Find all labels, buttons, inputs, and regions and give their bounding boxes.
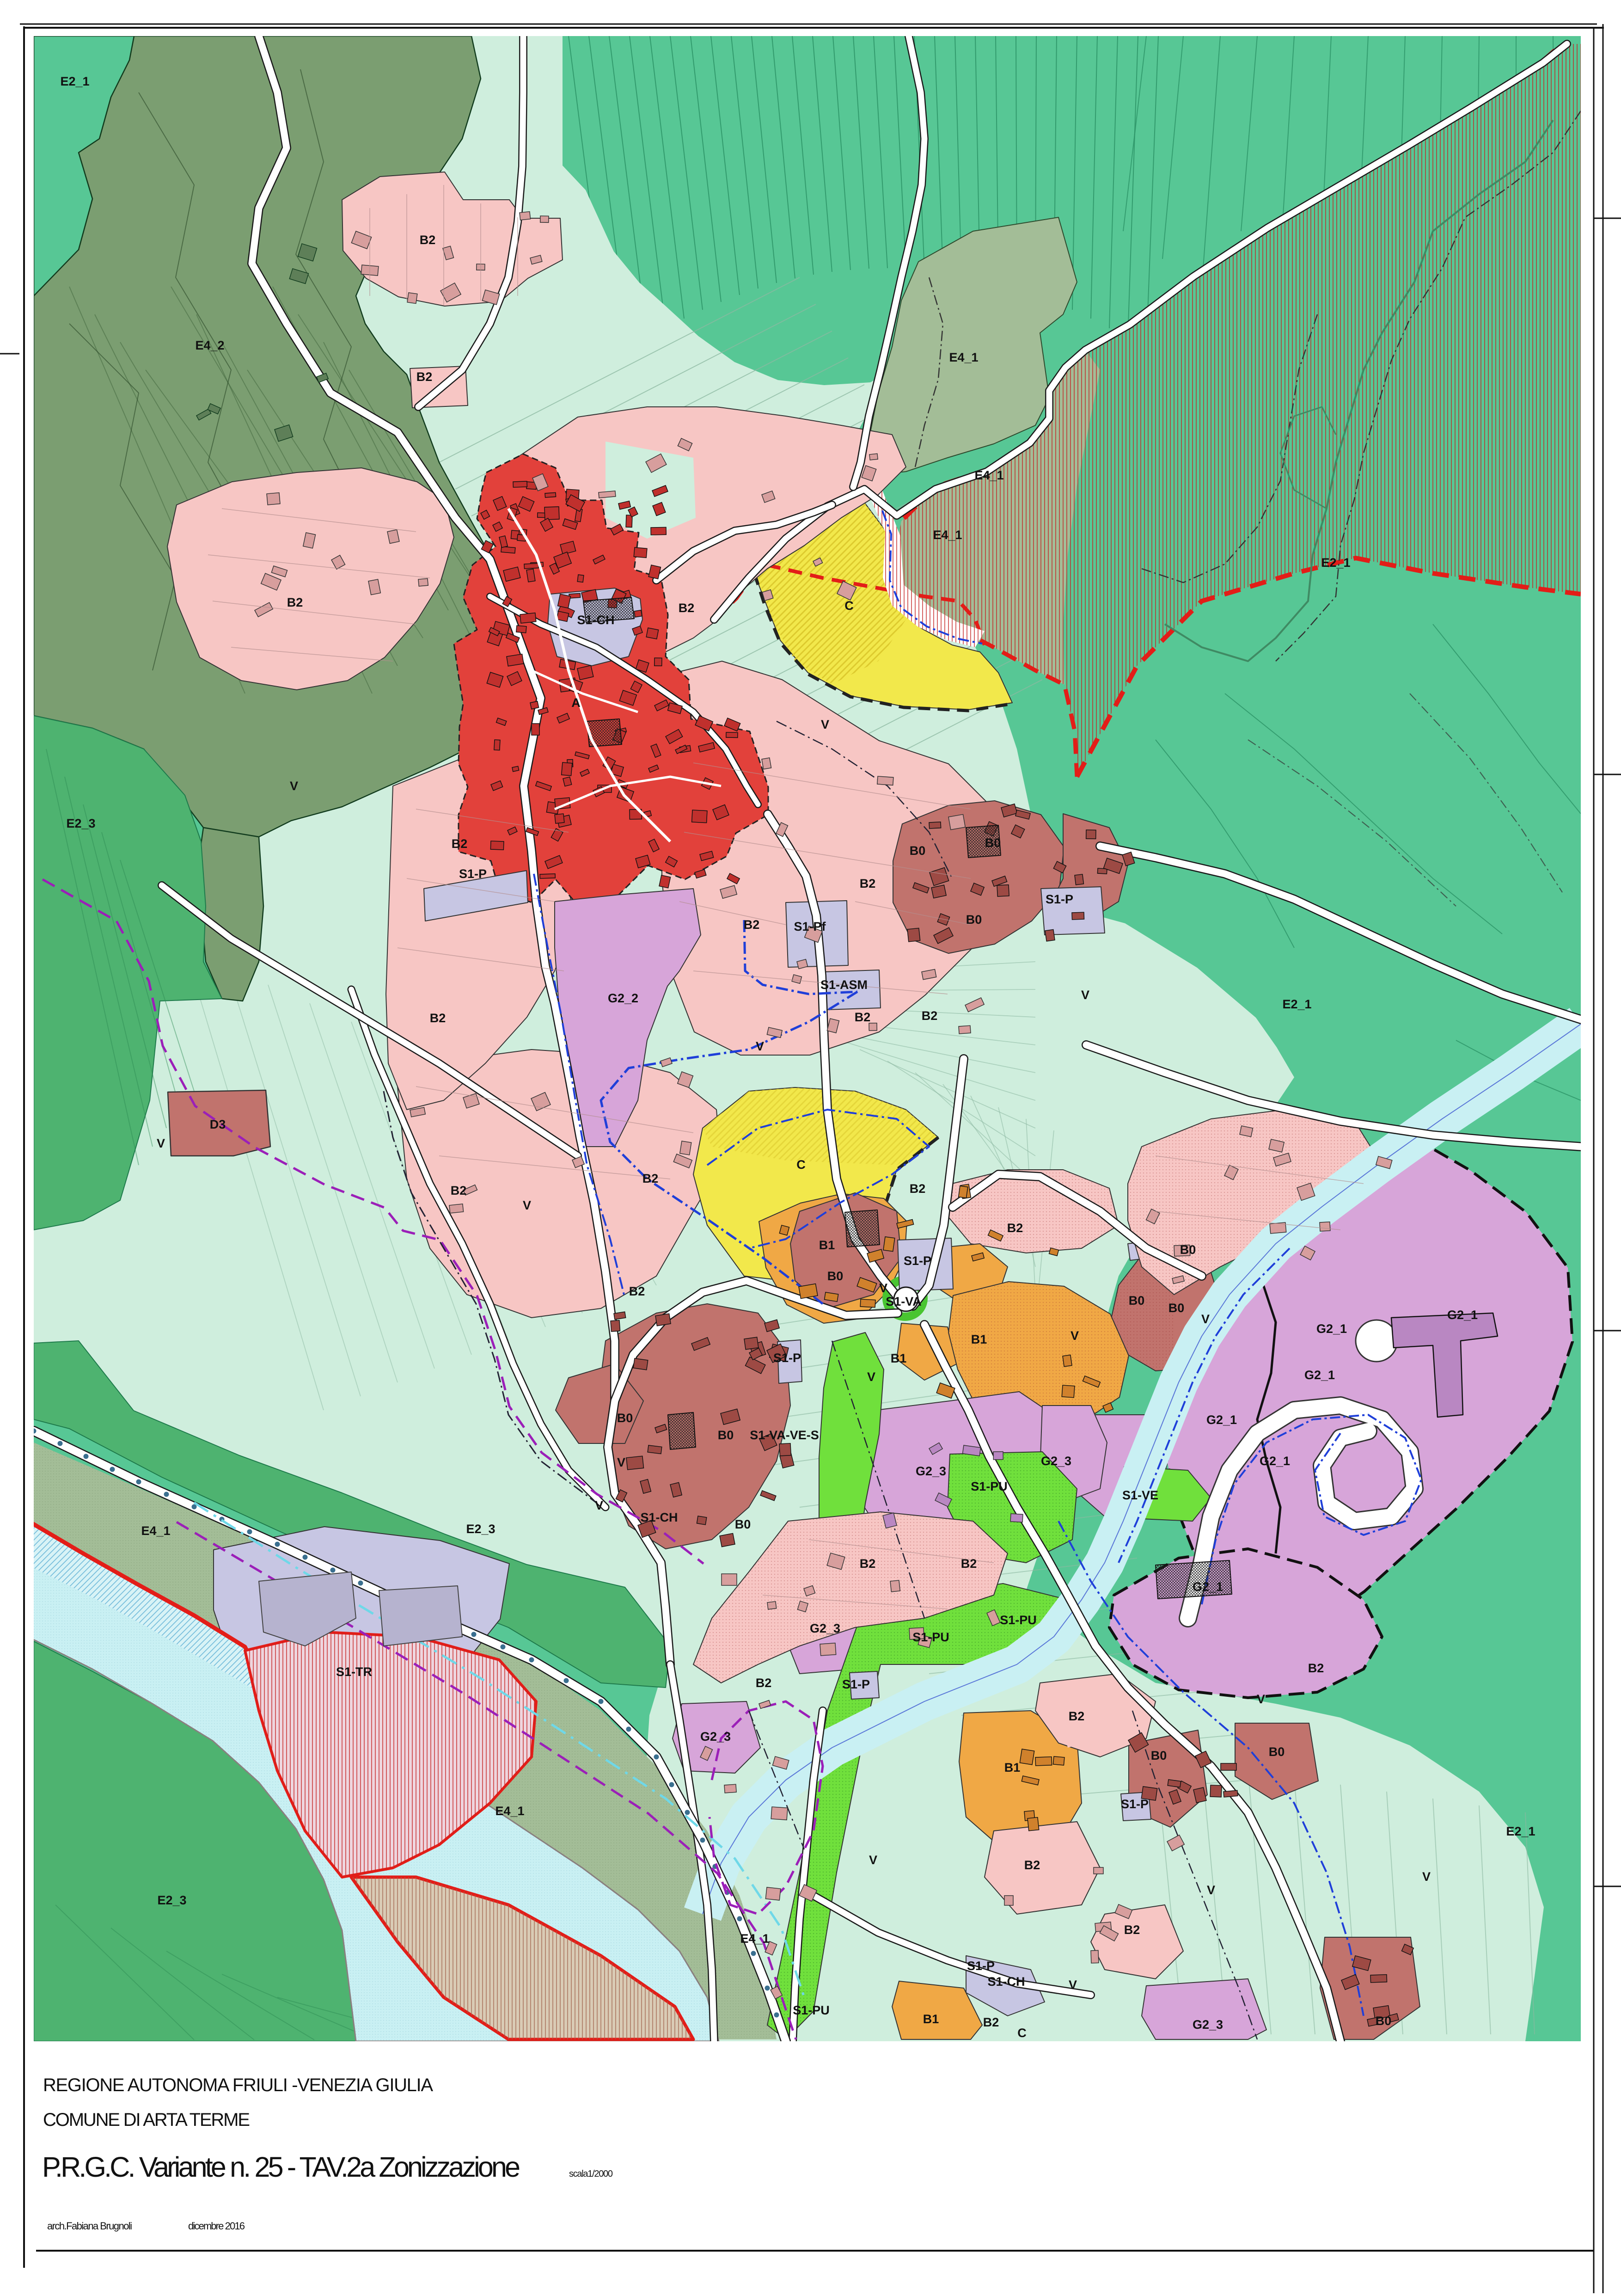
svg-text:V: V (1207, 1883, 1215, 1897)
svg-text:B2: B2 (756, 1676, 772, 1690)
svg-text:B1: B1 (923, 2012, 939, 2026)
svg-text:S1-VE: S1-VE (1122, 1488, 1158, 1502)
svg-text:B2: B2 (420, 233, 436, 247)
svg-text:B2: B2 (416, 370, 433, 384)
svg-text:B1: B1 (891, 1351, 907, 1365)
svg-text:B2: B2 (860, 877, 876, 890)
svg-text:COMUNE DI ARTA TERME: COMUNE DI ARTA TERME (43, 2110, 250, 2130)
svg-text:dicembre 2016: dicembre 2016 (188, 2220, 245, 2232)
svg-text:B0: B0 (735, 1517, 751, 1531)
svg-text:G2_3: G2_3 (916, 1464, 946, 1478)
svg-text:B0: B0 (1168, 1301, 1185, 1315)
svg-text:E4_1: E4_1 (495, 1804, 524, 1818)
svg-text:B0: B0 (910, 844, 926, 858)
svg-text:G2_1: G2_1 (1316, 1322, 1347, 1336)
svg-text:V: V (595, 1498, 603, 1512)
svg-text:B2: B2 (983, 2015, 999, 2029)
svg-text:S1-PU: S1-PU (1000, 1613, 1037, 1627)
svg-text:V: V (617, 1455, 625, 1469)
svg-text:C: C (796, 1158, 806, 1172)
svg-text:B1: B1 (971, 1332, 987, 1346)
svg-text:E4_1: E4_1 (141, 1524, 170, 1538)
svg-text:B1: B1 (819, 1238, 835, 1252)
svg-text:B2: B2 (910, 1182, 926, 1196)
svg-text:scala1/2000: scala1/2000 (569, 2169, 613, 2179)
svg-text:E4_1: E4_1 (740, 1932, 769, 1946)
svg-text:B2: B2 (287, 595, 303, 609)
svg-text:B2: B2 (430, 1011, 446, 1025)
svg-text:S1-PU: S1-PU (971, 1480, 1008, 1493)
svg-text:S1-P: S1-P (967, 1959, 995, 1973)
svg-text:B2: B2 (452, 837, 468, 851)
svg-text:G2_3: G2_3 (700, 1730, 731, 1743)
svg-text:S1-PU: S1-PU (912, 1630, 949, 1644)
svg-text:C: C (844, 599, 854, 613)
svg-text:S1-P: S1-P (842, 1677, 870, 1691)
svg-text:E2_1: E2_1 (1282, 997, 1311, 1011)
svg-text:S1-CH: S1-CH (577, 613, 614, 627)
svg-text:V: V (867, 1370, 875, 1384)
svg-text:G2_3: G2_3 (810, 1621, 840, 1635)
svg-text:E4_1: E4_1 (933, 528, 962, 542)
svg-text:S1-P: S1-P (1121, 1797, 1149, 1811)
svg-text:S1-TR: S1-TR (336, 1665, 372, 1679)
svg-text:REGIONE AUTONOMA FRIULI -VENEZ: REGIONE AUTONOMA FRIULI -VENEZIA GIULIA (43, 2075, 433, 2095)
svg-text:E2_1: E2_1 (1506, 1824, 1535, 1838)
svg-text:G2_1: G2_1 (1193, 1580, 1223, 1594)
svg-text:B2: B2 (1069, 1709, 1085, 1723)
svg-text:P.R.G.C. Variante n. 25 - TAV: P.R.G.C. Variante n. 25 - TAV.2a Zonizza… (42, 2151, 520, 2183)
svg-text:S1-CH: S1-CH (987, 1975, 1025, 1989)
svg-text:B2: B2 (855, 1010, 871, 1024)
svg-text:E4_2: E4_2 (195, 338, 224, 352)
svg-text:B0: B0 (617, 1411, 633, 1425)
svg-text:S1-P: S1-P (773, 1351, 801, 1365)
svg-text:B2: B2 (961, 1557, 977, 1571)
svg-text:E2_3: E2_3 (66, 816, 95, 830)
svg-text:B0: B0 (966, 913, 982, 927)
svg-text:V: V (1081, 988, 1089, 1002)
svg-text:E2_1: E2_1 (1321, 556, 1350, 570)
svg-text:G2_2: G2_2 (608, 991, 638, 1005)
svg-text:V: V (1257, 1692, 1265, 1706)
svg-text:S1-P: S1-P (1046, 892, 1073, 906)
svg-text:V: V (1070, 1329, 1079, 1343)
svg-text:G2_1: G2_1 (1206, 1413, 1237, 1427)
svg-text:S1-PU: S1-PU (793, 2003, 830, 2017)
svg-text:V: V (1069, 1978, 1077, 1992)
svg-text:E4_1: E4_1 (974, 468, 1003, 482)
svg-text:V: V (290, 779, 298, 793)
svg-text:E2_1: E2_1 (60, 74, 89, 88)
svg-text:G2_3: G2_3 (1193, 2018, 1223, 2032)
svg-text:B2: B2 (1308, 1661, 1324, 1675)
svg-text:G2_1: G2_1 (1260, 1454, 1290, 1468)
svg-text:B2: B2 (922, 1009, 938, 1023)
svg-text:S1-ASM: S1-ASM (820, 978, 868, 992)
svg-text:V: V (821, 718, 829, 731)
svg-text:V: V (1201, 1312, 1210, 1326)
svg-text:B0: B0 (1180, 1243, 1196, 1257)
svg-text:C: C (1017, 2026, 1027, 2040)
svg-text:V: V (869, 1853, 877, 1867)
svg-text:B2: B2 (1007, 1221, 1023, 1235)
svg-text:B0: B0 (827, 1269, 844, 1283)
svg-text:A: A (571, 696, 581, 710)
svg-text:V: V (1422, 1870, 1431, 1884)
svg-text:D3: D3 (210, 1117, 226, 1131)
svg-text:B2: B2 (642, 1172, 659, 1185)
svg-text:B2: B2 (860, 1557, 876, 1571)
svg-text:G2_1: G2_1 (1304, 1368, 1335, 1382)
svg-text:S1-P: S1-P (904, 1254, 931, 1268)
svg-text:B0: B0 (1269, 1745, 1285, 1759)
svg-text:B2: B2 (744, 918, 760, 932)
svg-text:B0: B0 (1129, 1294, 1145, 1308)
svg-text:B1: B1 (1004, 1761, 1021, 1774)
svg-text:B2: B2 (451, 1184, 467, 1197)
svg-text:S1-VA-VE-S: S1-VA-VE-S (750, 1428, 819, 1442)
svg-text:S1-VA: S1-VA (886, 1295, 922, 1308)
svg-text:S1-P: S1-P (459, 867, 487, 881)
svg-text:B0: B0 (718, 1428, 734, 1442)
svg-text:B2: B2 (1124, 1923, 1140, 1937)
svg-text:B2: B2 (1024, 1858, 1040, 1872)
svg-text:V: V (879, 1281, 887, 1295)
svg-text:E2_3: E2_3 (466, 1522, 495, 1536)
svg-text:E4_1: E4_1 (949, 350, 978, 364)
svg-text:V: V (523, 1198, 531, 1212)
svg-text:B2: B2 (679, 601, 695, 615)
svg-text:B0: B0 (1151, 1749, 1167, 1762)
svg-text:S1-CH: S1-CH (640, 1510, 678, 1524)
svg-text:B2: B2 (629, 1284, 645, 1298)
svg-text:B0: B0 (985, 836, 1001, 850)
svg-text:G2_1: G2_1 (1447, 1308, 1478, 1322)
svg-text:G2_3: G2_3 (1041, 1454, 1071, 1468)
svg-text:V: V (756, 1039, 764, 1053)
svg-text:E2_3: E2_3 (157, 1893, 186, 1907)
svg-text:V: V (157, 1136, 165, 1150)
svg-text:S1-Pf: S1-Pf (794, 920, 826, 933)
svg-text:arch.Fabiana Brugnoli: arch.Fabiana Brugnoli (47, 2220, 132, 2232)
svg-text:B0: B0 (1376, 2014, 1392, 2028)
